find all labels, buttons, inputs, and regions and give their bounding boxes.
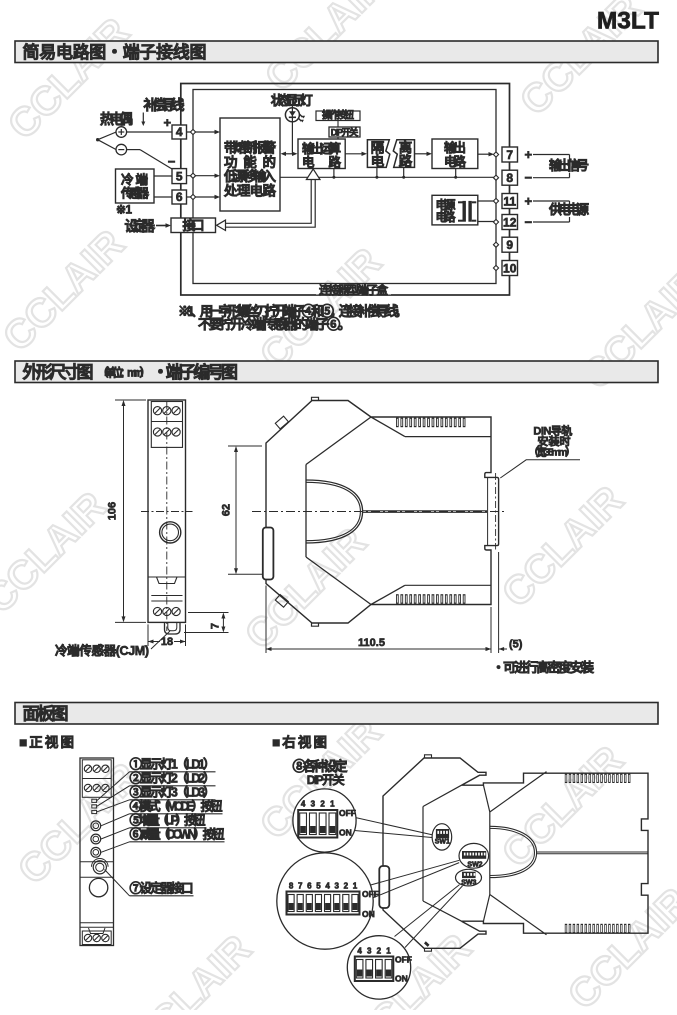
svg-text:SW3: SW3	[461, 880, 476, 887]
svg-text:8: 8	[289, 882, 294, 891]
svg-text:状态显示灯: 状态显示灯	[271, 93, 313, 108]
svg-text:4: 4	[301, 800, 306, 809]
svg-text:4: 4	[325, 882, 330, 891]
svg-text:7: 7	[210, 623, 222, 629]
svg-text:处理电路: 处理电路	[223, 182, 277, 198]
svg-text:・端子编号图: ・端子编号图	[152, 362, 238, 382]
svg-text:6: 6	[307, 882, 312, 891]
svg-text:+: +	[525, 194, 533, 209]
svg-text:5: 5	[176, 170, 183, 184]
svg-text:面板图: 面板图	[23, 704, 69, 724]
svg-text:①显示灯1（LD1）: ①显示灯1（LD1）	[130, 757, 216, 772]
svg-text:冷端传感器(CJM): 冷端传感器(CJM)	[55, 643, 149, 658]
svg-text:4: 4	[357, 947, 362, 956]
svg-text:③显示灯3（LD3）: ③显示灯3（LD3）	[130, 785, 216, 800]
svg-text:1: 1	[330, 800, 335, 809]
svg-text:4: 4	[176, 125, 183, 139]
svg-text:※1: ※1	[116, 203, 132, 217]
svg-text:电路: 电路	[444, 154, 466, 169]
svg-text:补偿导线: 补偿导线	[143, 97, 185, 113]
svg-text:热电偶: 热电偶	[100, 111, 133, 127]
svg-text:冷端: 冷端	[121, 172, 148, 187]
svg-text:−: −	[168, 154, 176, 169]
svg-text:⑥减量（DOWN）按钮: ⑥减量（DOWN）按钮	[130, 827, 225, 842]
svg-text:（单位：mm）: （单位：mm）	[97, 366, 151, 380]
svg-text:・可进行高密度安装: ・可进行高密度安装	[492, 660, 594, 675]
svg-text:供电电源: 供电电源	[548, 202, 589, 217]
svg-text:2: 2	[377, 947, 382, 956]
svg-text:输出信号: 输出信号	[549, 158, 589, 173]
svg-text:5: 5	[316, 882, 321, 891]
svg-text:−: −	[525, 215, 533, 230]
svg-text:9: 9	[506, 238, 513, 252]
svg-text:3: 3	[334, 882, 339, 891]
svg-text:7: 7	[298, 882, 303, 891]
svg-text:外形尺寸图: 外形尺寸图	[23, 362, 94, 382]
svg-text:（宽35mm）: （宽35mm）	[528, 446, 576, 459]
svg-text:②显示灯2（LD2）: ②显示灯2（LD2）	[130, 771, 216, 786]
svg-text:ON: ON	[339, 828, 352, 838]
svg-text:传感器: 传感器	[120, 186, 149, 201]
svg-text:⑤增量（UP）按钮: ⑤增量（UP）按钮	[130, 813, 206, 828]
svg-text:低漂移输入: 低漂移输入	[223, 168, 277, 184]
svg-text:⑧各种设定: ⑧各种设定	[293, 758, 349, 774]
svg-text:11: 11	[503, 194, 516, 208]
svg-text:−: −	[525, 170, 533, 185]
svg-text:OFF: OFF	[339, 808, 356, 818]
svg-text:8: 8	[506, 171, 513, 185]
svg-text:电: 电	[371, 153, 385, 169]
svg-text:1: 1	[353, 882, 358, 891]
svg-text:12: 12	[503, 215, 517, 229]
svg-text:ON: ON	[395, 974, 408, 984]
svg-text:电路: 电路	[436, 209, 457, 224]
svg-text:2: 2	[344, 882, 349, 891]
svg-text:⑦设定器接口: ⑦设定器接口	[130, 881, 194, 896]
svg-text:DIP开关: DIP开关	[307, 772, 345, 787]
svg-text:操作按钮: 操作按钮	[322, 109, 354, 122]
svg-text:(5): (5)	[509, 639, 523, 651]
svg-text:M3LT: M3LT	[597, 8, 659, 35]
svg-text:OFF: OFF	[362, 889, 379, 899]
svg-text:DIP开关: DIP开关	[331, 126, 359, 137]
svg-text:2: 2	[320, 800, 325, 809]
svg-text:不要拧开冷端传感器的端子⑥。: 不要拧开冷端传感器的端子⑥。	[198, 316, 351, 332]
svg-text:SW1: SW1	[435, 839, 450, 846]
svg-text:设定器: 设定器	[125, 218, 157, 234]
svg-text:输出运算: 输出运算	[302, 141, 341, 156]
svg-text:3: 3	[367, 947, 372, 956]
svg-text:带熔断报警: 带熔断报警	[224, 140, 277, 156]
svg-text:接口: 接口	[183, 218, 205, 233]
svg-text:简易电路图・端子接线图: 简易电路图・端子接线图	[23, 42, 207, 62]
svg-text:连接器型端子盒: 连接器型端子盒	[319, 283, 389, 297]
svg-text:1: 1	[386, 947, 391, 956]
svg-text:10: 10	[503, 261, 517, 275]
svg-text:6: 6	[176, 190, 183, 204]
svg-text:110.5: 110.5	[358, 637, 385, 649]
svg-text:+: +	[525, 147, 533, 162]
svg-text:ON: ON	[362, 909, 375, 919]
svg-text:输出: 输出	[444, 140, 466, 155]
svg-text:7: 7	[506, 148, 513, 162]
svg-text:OFF: OFF	[395, 955, 412, 965]
svg-text:SW2: SW2	[467, 862, 482, 869]
svg-text:62: 62	[221, 504, 233, 516]
svg-text:功能的: 功能的	[224, 154, 276, 170]
svg-text:+: +	[164, 115, 172, 130]
svg-text:路: 路	[399, 153, 413, 169]
svg-text:④模式（MODE）按钮: ④模式（MODE）按钮	[130, 799, 223, 814]
svg-text:106: 106	[107, 502, 119, 520]
svg-text:3: 3	[311, 800, 316, 809]
